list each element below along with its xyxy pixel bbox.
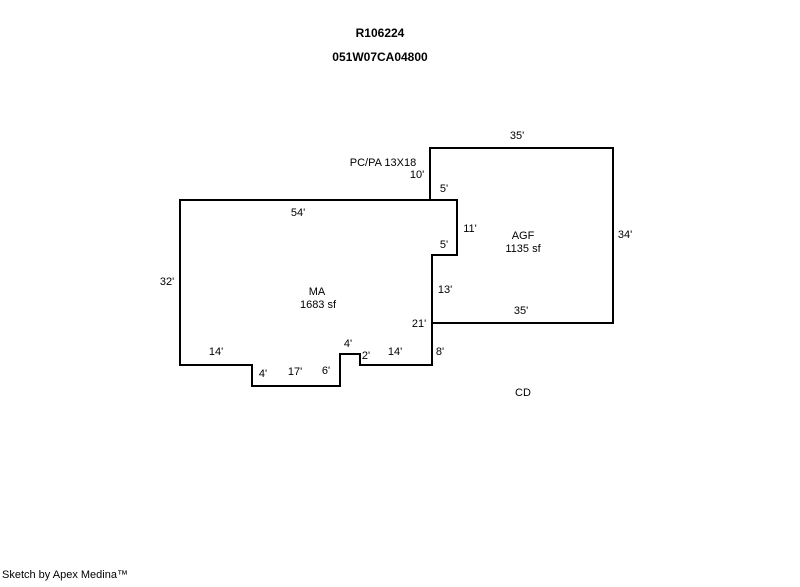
dim-ma-tab-right: 2': [362, 350, 370, 362]
dim-agf-bottom: 35': [514, 305, 528, 317]
ma-code-label: MA: [309, 286, 326, 298]
dim-agf-left-upper: 10': [410, 169, 424, 181]
dim-agf-left-lower: 13': [438, 284, 452, 296]
dim-ma-tab-left: 6': [322, 365, 330, 377]
property-sketch-page: R106224 051W07CA04800 PC/PA 13X18 AGF 11…: [0, 0, 800, 587]
sketch-drawing: [0, 0, 800, 587]
dim-agf-top: 35': [510, 130, 524, 142]
ma-area-label: 1683 sf: [300, 299, 336, 311]
dim-agf-notch-bottom: 5': [440, 239, 448, 251]
dim-ma-notch-left: 4': [259, 368, 267, 380]
dim-ma-right-lower: 8': [436, 346, 444, 358]
dim-agf-notch-right: 11': [463, 223, 477, 235]
dim-agf-right: 34': [618, 229, 632, 241]
agf-area-label: 1135 sf: [505, 243, 540, 255]
dim-ma-left: 32': [160, 276, 174, 288]
dim-ma-bottom-left: 14': [209, 346, 223, 358]
dim-ma-notch-bottom: 17': [288, 366, 302, 378]
agf-code-label: AGF: [512, 230, 535, 242]
dim-ma-right-total: 21': [412, 318, 426, 330]
pc-pa-label: PC/PA 13X18: [350, 157, 416, 169]
cd-label: CD: [515, 387, 531, 399]
dim-ma-tab-top: 4': [344, 338, 352, 350]
dim-ma-bottom-right: 14': [388, 346, 402, 358]
sketch-credit: Sketch by Apex Medina™: [2, 569, 128, 581]
dim-ma-top: 54': [291, 207, 305, 219]
dim-agf-attach-top: 5': [440, 183, 448, 195]
